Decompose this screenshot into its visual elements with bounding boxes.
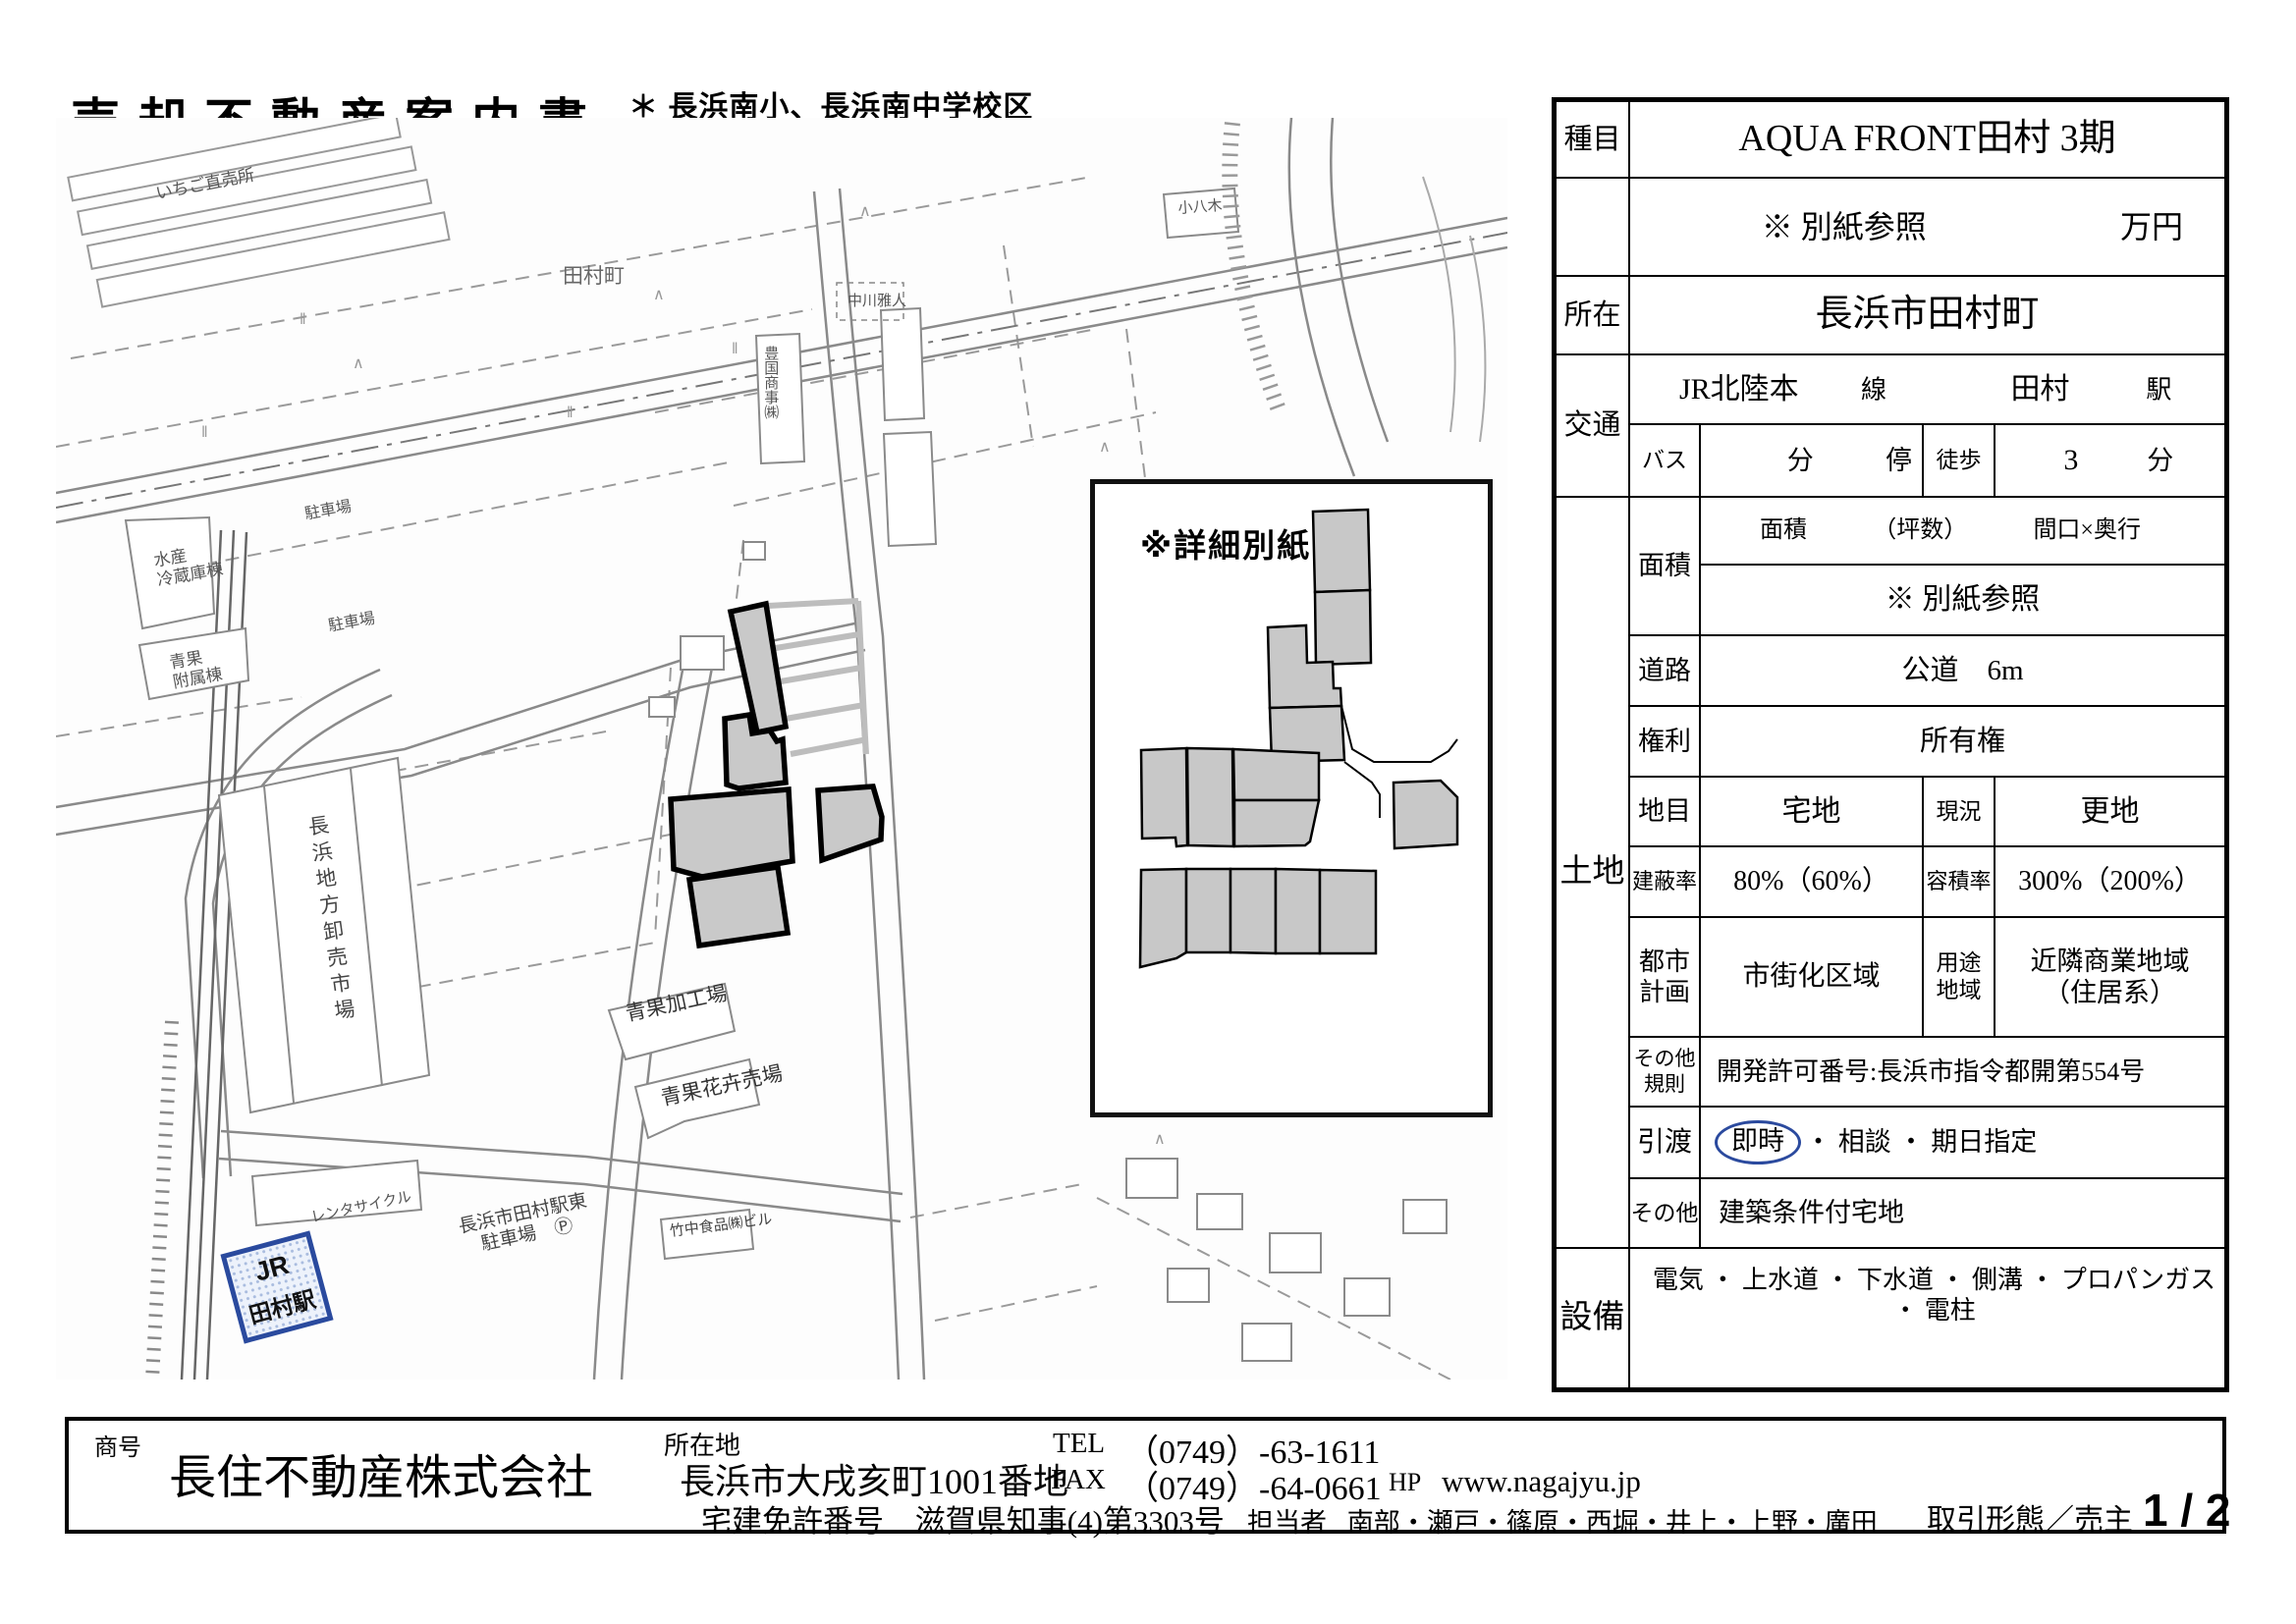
footer-transaction-type: 取引形態／売主 xyxy=(1927,1495,2133,1539)
svg-text:∧: ∧ xyxy=(859,203,871,220)
spec-rights-value: 所有権 xyxy=(1700,706,2225,777)
spec-area-h-menseki: 面積 xyxy=(1760,516,1807,545)
spec-bus-stop-unit: 停 xyxy=(1886,445,1912,476)
svg-text:‖: ‖ xyxy=(732,341,738,357)
spec-other-rule-label: その他 規則 xyxy=(1629,1037,1700,1107)
spec-land-label: 土地 xyxy=(1556,497,1629,1248)
spec-area-value: ※ 別紙参照 xyxy=(1700,565,2225,635)
spec-walk-unit: 分 xyxy=(2147,445,2173,476)
spec-walk-cell: 3 分 xyxy=(1995,424,2225,497)
inset-lot xyxy=(1230,869,1276,953)
spec-handover-value: 即時 ・ 相談 ・ 期日指定 xyxy=(1700,1107,2225,1178)
spec-bus-min-unit: 分 xyxy=(1787,445,1814,476)
spec-area-h-tsubo: （坪数） xyxy=(1873,516,1967,545)
spec-property-name: AQUA FRONT田村 3期 xyxy=(1629,101,2225,178)
spec-location-label: 所在 xyxy=(1556,276,1629,354)
spec-city-label: 都市 計画 xyxy=(1629,917,1700,1037)
spec-rail-line: JR北陸本 xyxy=(1679,372,1799,407)
spec-price-value: ※ 別紙参照 xyxy=(1762,208,1927,245)
inset-note: ※詳細別紙 xyxy=(1140,519,1311,567)
footer-tel-label: TEL xyxy=(1053,1428,1105,1460)
inset-lot xyxy=(1233,749,1319,800)
svg-text:∧: ∧ xyxy=(353,355,364,372)
spec-handover-other-options: ・ 相談 ・ 期日指定 xyxy=(1805,1126,2037,1158)
spec-area-header: 面積 （坪数） 間口×奥行 xyxy=(1700,497,2225,565)
spec-current-value: 更地 xyxy=(1995,777,2225,846)
inset-lot xyxy=(1234,800,1319,846)
footer-hp-label: HP xyxy=(1389,1468,1421,1497)
footer-license-label: 宅建免許番号 xyxy=(701,1504,884,1539)
spec-city-value: 市街化区域 xyxy=(1700,917,1923,1037)
map-label-toyokuni: 豊国商事㈱ xyxy=(762,346,779,419)
spec-far-value: 300%（200%） xyxy=(1995,846,2225,917)
spec-area-label: 面積 xyxy=(1629,497,1700,635)
footer-company-box: 商号 長住不動産株式会社 所在地 長浜市大戌亥町1001番地 宅建免許番号 滋賀… xyxy=(65,1417,2226,1534)
footer-company-name: 長住不動産株式会社 xyxy=(169,1438,593,1507)
spec-walk-min: 3 xyxy=(2063,443,2078,478)
spec-category-value: 宅地 xyxy=(1700,777,1923,846)
svg-text:‖: ‖ xyxy=(201,424,208,441)
footer-staff-names: 南部・瀬戸・篠原・西堀・井上・上野・廣田 xyxy=(1347,1508,1878,1538)
spec-rights-label: 権利 xyxy=(1629,706,1700,777)
spec-price-cell: ※ 別紙参照 万円 xyxy=(1629,178,2225,276)
svg-text:∧: ∧ xyxy=(1099,439,1111,456)
inset-lot xyxy=(1140,869,1186,967)
spec-other-rule-value: 開発許可番号:長浜市指令都開第554号 xyxy=(1700,1037,2225,1107)
map-label-nakagawa: 中川雅人 xyxy=(847,293,906,309)
station-line-label: JR xyxy=(251,1249,292,1287)
spec-road-label: 道路 xyxy=(1629,635,1700,706)
property-spec-table: 種目 AQUA FRONT田村 3期 ※ 別紙参照 万円 所在 長浜市田村町 交… xyxy=(1552,97,2229,1392)
inset-plan-box: ※詳細別紙 xyxy=(1090,479,1493,1117)
spec-walk-label: 徒歩 xyxy=(1923,424,1995,497)
spec-coverage-value: 80%（60%） xyxy=(1700,846,1923,917)
spec-rail-line-unit: 線 xyxy=(1861,374,1886,405)
spec-rail-station: 田村 xyxy=(2010,372,2069,407)
footer-trade-name-label: 商号 xyxy=(94,1428,141,1462)
inset-lot xyxy=(1186,869,1230,952)
inset-lot xyxy=(1141,748,1187,846)
spec-area-h-maguchi: 間口×奥行 xyxy=(2033,516,2141,545)
footer-staff-label: 担当者 xyxy=(1247,1508,1327,1538)
svg-text:∧: ∧ xyxy=(1154,1131,1166,1148)
footer-hp-value: www.nagajyu.jp xyxy=(1442,1464,1641,1499)
spec-coverage-label: 建蔽率 xyxy=(1629,846,1700,917)
spec-zoning-value: 近隣商業地域 （住居系） xyxy=(1995,917,2225,1037)
footer-staff-line: 担当者 南部・瀬戸・篠原・西堀・井上・上野・廣田 xyxy=(1247,1501,1878,1540)
map-label-tamuracho: 田村町 xyxy=(563,265,625,289)
spec-current-label: 現況 xyxy=(1923,777,1995,846)
footer-license-value: 滋賀県知事(4)第3303号 xyxy=(915,1504,1225,1539)
spec-other-label: その他 xyxy=(1629,1178,1700,1248)
inset-lots xyxy=(1140,510,1457,967)
svg-text:∧: ∧ xyxy=(653,287,665,303)
inset-plan-drawing xyxy=(1095,484,1488,1112)
spec-other-value: 建築条件付宅地 xyxy=(1700,1178,2225,1248)
spec-utilities-label: 設備 xyxy=(1556,1248,1629,1388)
inset-lot xyxy=(1187,748,1233,846)
footer-page-number: 1 / 2 xyxy=(2143,1484,2231,1537)
spec-access-label: 交通 xyxy=(1556,354,1629,497)
spec-rail-cell: JR北陸本 線 田村 駅 xyxy=(1629,354,2225,424)
spec-price-label-empty xyxy=(1556,178,1629,276)
spec-bus-cell: 分 停 xyxy=(1700,424,1923,497)
inset-lot xyxy=(1320,870,1376,953)
spec-zoning-label: 用途 地域 xyxy=(1923,917,1995,1037)
svg-text:‖: ‖ xyxy=(300,311,306,328)
spec-handover-circled-option: 即時 xyxy=(1715,1120,1801,1164)
spec-price-unit: 万円 xyxy=(2120,208,2183,245)
spec-type-label: 種目 xyxy=(1556,101,1629,178)
spec-bus-label: バス xyxy=(1629,424,1700,497)
spec-road-value: 公道 6m xyxy=(1700,635,2225,706)
inset-lot xyxy=(1276,869,1320,953)
spec-utilities-value: 電気 ・ 上水道 ・ 下水道 ・ 側溝 ・ プロパンガス ・ 電柱 xyxy=(1629,1248,2225,1388)
flyer-page: 売却不動産案内書 ＊ 長浜南小、長浜南中学校区 ＊ ＪＲ田村駅至近 ＊ 建築条件… xyxy=(0,0,2296,1624)
inset-lot xyxy=(1394,781,1457,848)
spec-location-value: 長浜市田村町 xyxy=(1629,276,2225,354)
spec-rail-station-unit: 駅 xyxy=(2146,374,2171,405)
spec-handover-label: 引渡 xyxy=(1629,1107,1700,1178)
station-name-label: 田村駅 xyxy=(245,1280,318,1330)
inset-lot xyxy=(1313,510,1370,592)
inset-lot xyxy=(1315,590,1371,665)
map-label-koyagi: 小八木 xyxy=(1177,197,1223,217)
spec-category-label: 地目 xyxy=(1629,777,1700,846)
spec-far-label: 容積率 xyxy=(1923,846,1995,917)
svg-text:‖: ‖ xyxy=(567,405,574,421)
footer-fax-label: FAX xyxy=(1051,1464,1106,1496)
